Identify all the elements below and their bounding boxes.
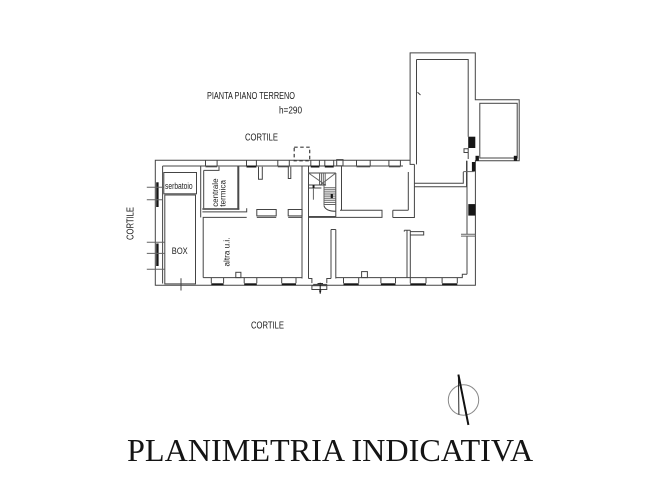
- svg-text:CORTILE: CORTILE: [126, 207, 137, 240]
- svg-text:serbatoio: serbatoio: [165, 181, 193, 191]
- svg-text:termica: termica: [218, 179, 227, 206]
- svg-text:BOX: BOX: [172, 246, 188, 256]
- svg-text:h=290: h=290: [279, 106, 303, 117]
- svg-text:PIANTA PIANO TERRENO: PIANTA PIANO TERRENO: [207, 91, 295, 102]
- svg-text:CORTILE: CORTILE: [251, 321, 284, 332]
- svg-text:CORTILE: CORTILE: [245, 133, 278, 144]
- svg-text:PLANIMETRIA INDICATIVA: PLANIMETRIA INDICATIVA: [127, 432, 534, 468]
- svg-text:altra u.i.: altra u.i.: [223, 238, 232, 267]
